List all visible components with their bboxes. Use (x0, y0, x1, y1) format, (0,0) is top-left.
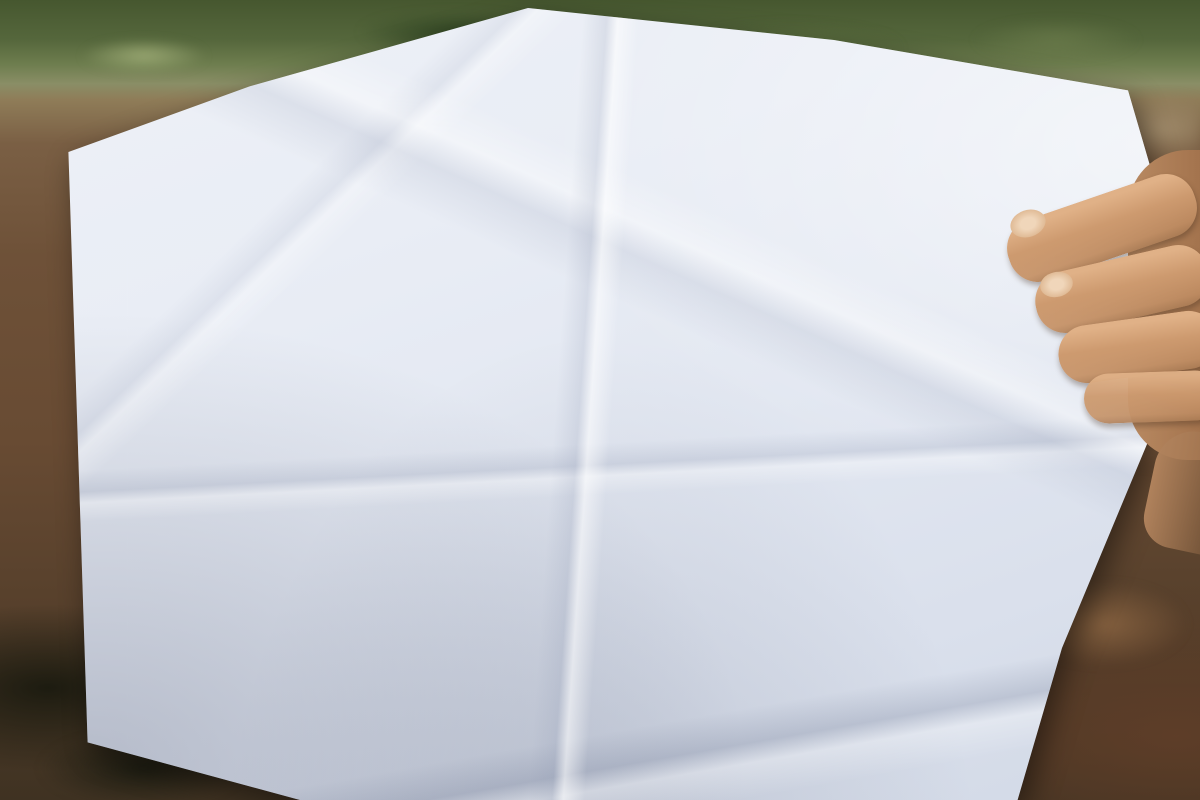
subdivision-plan-drawing (0, 0, 1200, 800)
photo-of-subdivision-plan (0, 0, 1200, 800)
finger-icon (1083, 370, 1200, 425)
